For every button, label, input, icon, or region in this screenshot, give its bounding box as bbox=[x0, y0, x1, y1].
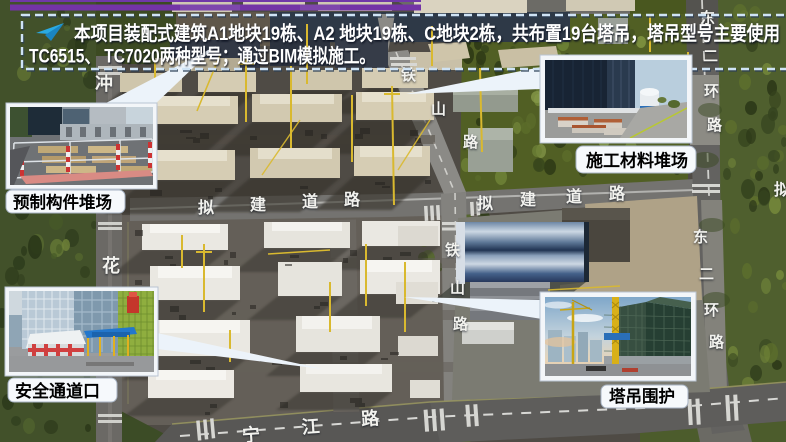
svg-text:路: 路 bbox=[360, 407, 380, 429]
svg-text:路: 路 bbox=[344, 190, 361, 209]
svg-text:东: 东 bbox=[693, 228, 708, 246]
svg-text:环: 环 bbox=[704, 83, 719, 100]
svg-text:拟: 拟 bbox=[774, 180, 786, 199]
svg-text:TC6515、 TC7020两种型号；通过BIM模拟施工。: TC6515、 TC7020两种型号；通过BIM模拟施工。 bbox=[29, 45, 375, 68]
svg-text:安全通道口: 安全通道口 bbox=[15, 381, 100, 401]
svg-text:建: 建 bbox=[250, 196, 266, 214]
svg-text:预制构件堆场: 预制构件堆场 bbox=[13, 192, 112, 212]
svg-text:宁: 宁 bbox=[241, 424, 260, 442]
svg-text:拟: 拟 bbox=[477, 194, 493, 213]
svg-text:建: 建 bbox=[520, 191, 536, 209]
svg-text:路: 路 bbox=[463, 133, 479, 151]
svg-text:冲: 冲 bbox=[95, 73, 113, 94]
svg-text:路: 路 bbox=[609, 184, 626, 203]
svg-text:山: 山 bbox=[450, 280, 465, 297]
svg-text:江: 江 bbox=[301, 416, 320, 437]
svg-text:路: 路 bbox=[709, 333, 725, 351]
svg-text:山: 山 bbox=[431, 101, 446, 118]
svg-text:拟: 拟 bbox=[198, 198, 214, 217]
svg-text:环: 环 bbox=[704, 302, 719, 319]
svg-text:铁: 铁 bbox=[445, 241, 460, 259]
svg-text:施工材料堆场: 施工材料堆场 bbox=[586, 151, 688, 171]
svg-text:塔吊围护: 塔吊围护 bbox=[609, 386, 675, 406]
svg-text:道: 道 bbox=[566, 187, 582, 206]
svg-text:二: 二 bbox=[703, 48, 718, 65]
svg-text:花: 花 bbox=[102, 255, 120, 276]
svg-text:本项目装配式建筑A1地块19栋、A2 地块19栋、C地块2栋: 本项目装配式建筑A1地块19栋、A2 地块19栋、C地块2栋，共布置19台塔吊，… bbox=[74, 22, 780, 45]
svg-text:二: 二 bbox=[699, 266, 714, 283]
svg-text:路: 路 bbox=[707, 116, 723, 134]
svg-text:道: 道 bbox=[302, 192, 318, 211]
svg-text:路: 路 bbox=[453, 315, 469, 333]
